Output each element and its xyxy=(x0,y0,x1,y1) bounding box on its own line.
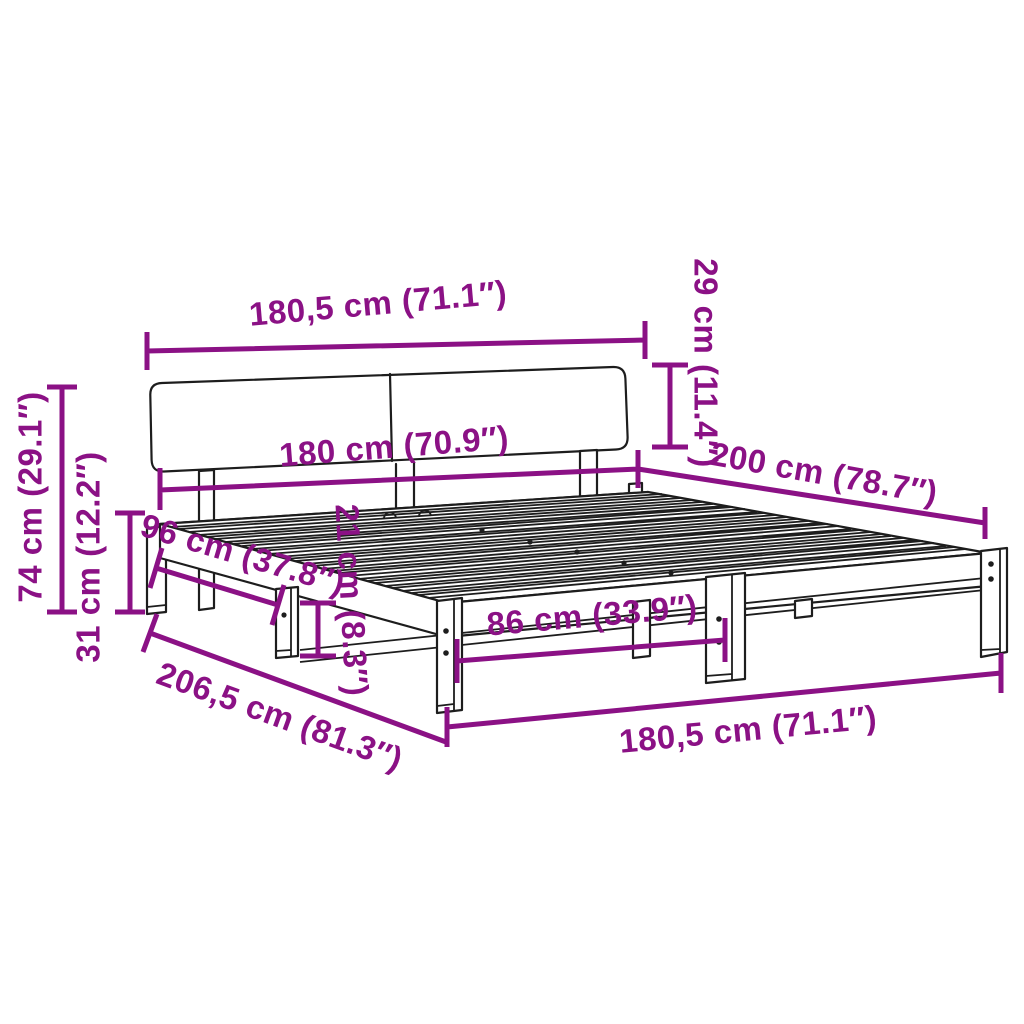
dim-top-width-label: 180,5 cm (71.1″) xyxy=(248,273,509,332)
dim-total-height: 74 cm (29.1″) xyxy=(12,387,78,612)
bed-line-art xyxy=(147,367,1007,713)
headboard-post-center xyxy=(396,463,414,512)
dim-top-width: 180,5 cm (71.1″) xyxy=(147,273,645,370)
dim-base-height-label: 31 cm (12.2″) xyxy=(70,451,107,662)
foot-right-leg xyxy=(981,548,1007,657)
headboard-post-right xyxy=(580,450,597,498)
product-dimension-diagram: 180,5 cm (71.1″) 29 cm (11.4″) 180 cm (7… xyxy=(0,0,1024,1024)
rail-bracket xyxy=(795,599,812,618)
dim-top-width-line xyxy=(147,321,645,370)
dim-under-clearance-line xyxy=(300,603,336,656)
dim-base-height: 31 cm (12.2″) xyxy=(70,451,146,662)
dim-total-height-label: 74 cm (29.1″) xyxy=(12,391,49,602)
bed-frame-diagram-canvas: 180,5 cm (71.1″) 29 cm (11.4″) 180 cm (7… xyxy=(0,0,1024,1024)
dim-headboard-height-line xyxy=(652,365,688,447)
